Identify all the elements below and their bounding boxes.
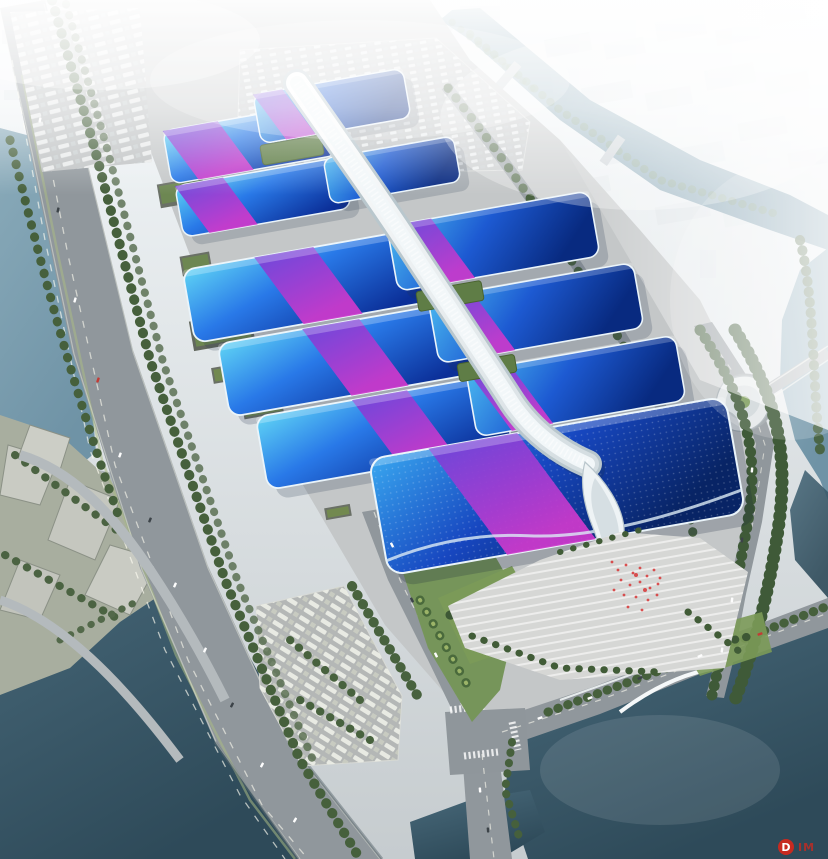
watermark-text: IM — [798, 841, 815, 854]
aerial-render: D IM — [0, 0, 828, 859]
watermark-logo-letter: D — [781, 841, 790, 854]
pond-cloud-reflection — [540, 715, 780, 825]
